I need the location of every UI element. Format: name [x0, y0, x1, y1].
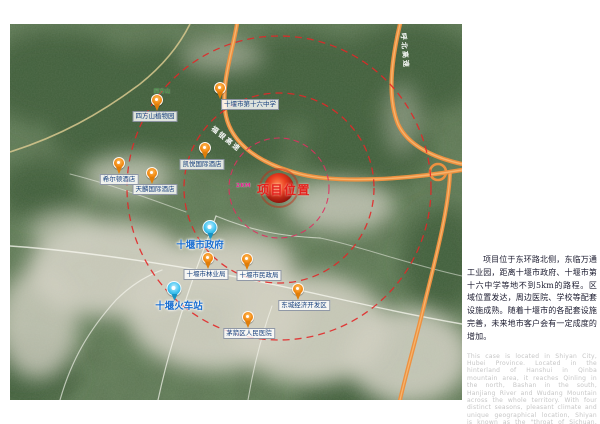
map-label-forestry-bureau: 十堰市林业局 — [184, 269, 229, 280]
map-label-botanical-garden: 四方山植物园 — [133, 111, 178, 122]
map-pin-forestry-bureau — [202, 252, 214, 270]
map-label-dongcheng-dev-zone: 东城经济开发区 — [278, 300, 330, 311]
radius-2km-label: 2KM — [236, 183, 251, 189]
satellite-terrain — [10, 24, 462, 400]
map-pin-hotel-hilton — [113, 157, 125, 175]
presentation-slide: 福银高速 呼北高速 四方山 四方山植物园 十堰市第十六中学 凯悦国际酒店 希尔顿… — [0, 0, 600, 424]
map-label-hotel-kaiyue: 凯悦国际酒店 — [180, 159, 225, 170]
map-label-no16-middle-school: 十堰市第十六中学 — [221, 99, 279, 110]
map-pin-railway-station — [167, 281, 182, 302]
map-label-civil-affairs-bureau: 十堰市民政局 — [237, 270, 282, 281]
project-description-zh: 项目位于东环路北侧，东临万通工业园，距离十堰市政府、十堰市第十六中学等地不到5k… — [467, 254, 597, 344]
description-panel: 项目位于东环路北侧，东临万通工业园，距离十堰市政府、十堰市第十六中学等地不到5k… — [467, 254, 597, 424]
map-label-city-government: 十堰市政府 — [174, 241, 226, 250]
map-pin-hotel-kaiyue — [199, 142, 211, 160]
project-location-label: 项目位置 — [257, 181, 311, 198]
map-pin-hotel-tianlin — [146, 167, 158, 185]
map-label-railway-station: 十堰火车站 — [153, 302, 205, 311]
satellite-map: 福银高速 呼北高速 四方山 四方山植物园 十堰市第十六中学 凯悦国际酒店 希尔顿… — [10, 24, 462, 400]
map-pin-maojian-hospital — [242, 311, 254, 329]
map-label-hotel-tianlin: 天麟国际酒店 — [133, 184, 178, 195]
map-pin-civil-affairs-bureau — [241, 253, 253, 271]
map-pin-no16-middle-school — [214, 82, 226, 100]
map-label-maojian-hospital: 茅箭区人民医院 — [223, 328, 275, 339]
map-pin-botanical-garden — [151, 94, 163, 112]
project-description-en: This case is located in Shiyan City, Hub… — [467, 353, 597, 424]
map-pin-city-government — [203, 220, 218, 241]
map-pin-dongcheng-dev-zone — [292, 283, 304, 301]
